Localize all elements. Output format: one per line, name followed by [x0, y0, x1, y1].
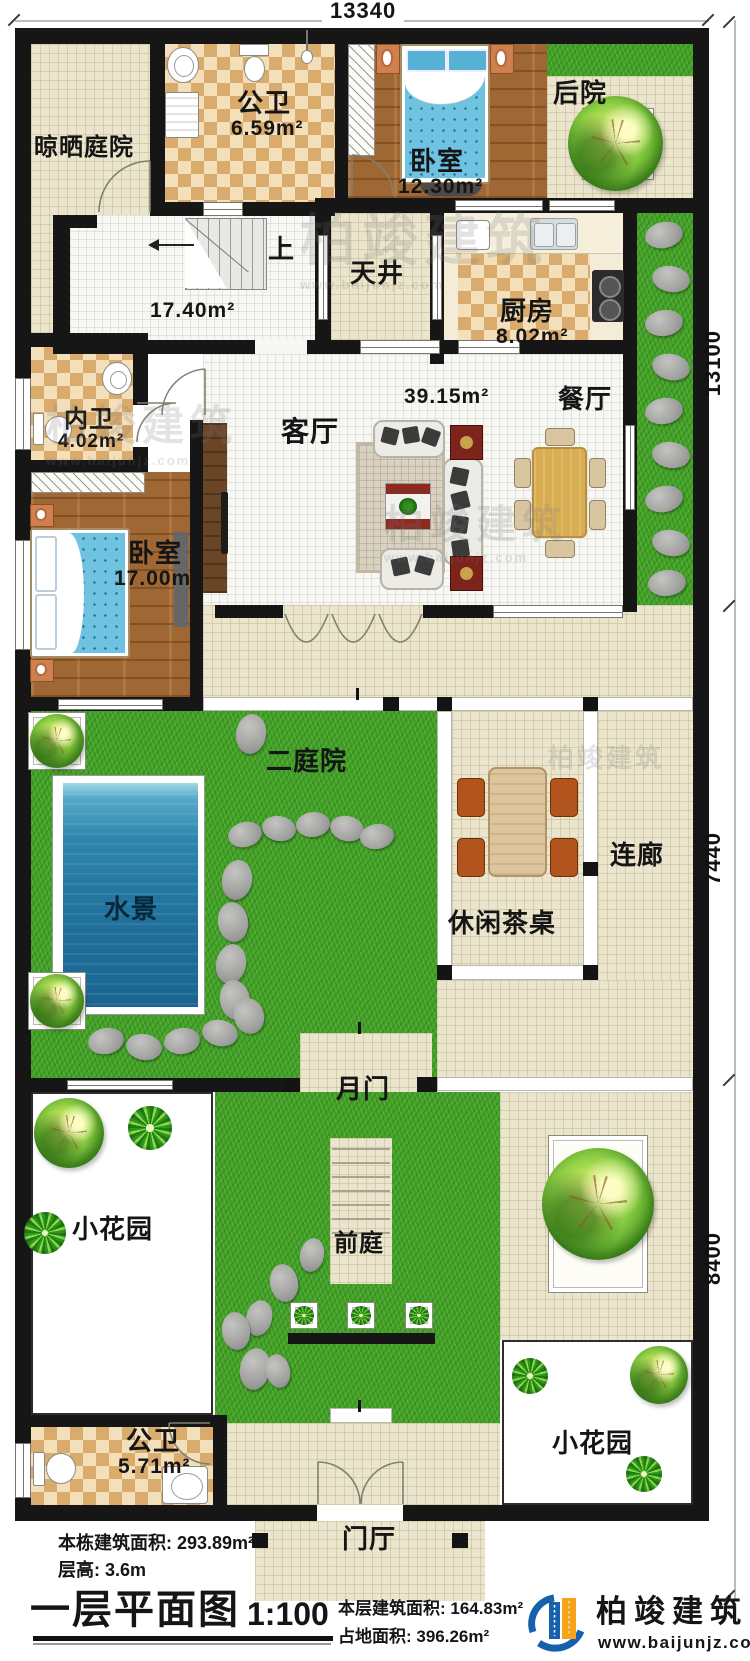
wall: [215, 605, 283, 618]
shower-icon: [165, 92, 199, 138]
pillow: [35, 594, 57, 650]
tea-chair: [457, 838, 485, 877]
label-garden-left: 小花园: [72, 1216, 153, 1242]
wall-bottom-left: [15, 1505, 317, 1521]
window-bedroom-main-west: [15, 540, 31, 650]
bed: [30, 528, 130, 658]
window-living-south: [493, 605, 623, 618]
nightstand: [490, 44, 514, 74]
opening-hall-living: [255, 340, 307, 354]
mini-planter: [290, 1302, 318, 1329]
tree-icon: [630, 1346, 688, 1404]
dim-line-right: [734, 20, 736, 1600]
dining-chair: [589, 500, 606, 530]
label-bedroom-top-area: 12.30m²: [398, 176, 483, 197]
corridor-band-west: [437, 711, 452, 980]
label-moon-gate: 月门: [336, 1076, 390, 1102]
shrub-icon: [128, 1106, 172, 1150]
label-living: 客厅: [281, 418, 339, 446]
dining-chair: [589, 458, 606, 488]
folding-door[interactable]: [330, 612, 377, 660]
gate-courtyard-west[interactable]: [67, 1080, 173, 1090]
tree-icon: [34, 1098, 104, 1168]
toilet-bowl-icon: [46, 1453, 76, 1484]
shrub-icon: [626, 1456, 662, 1492]
wall: [307, 340, 360, 354]
label-bedroom-top: 卧室: [410, 148, 464, 174]
tea-table: [488, 767, 547, 877]
label-bedroom-main: 卧室: [128, 540, 182, 566]
stair-arrow-head: [148, 239, 159, 251]
footer-building-area: 本栋建筑面积: 293.89m²: [58, 1534, 254, 1552]
nightstand: [376, 44, 400, 74]
swing-marker: [358, 1022, 361, 1034]
pillow: [35, 536, 57, 592]
pillar: [383, 697, 399, 711]
floor-plan: 柏竣建筑www.baijunjz.com 柏竣建筑www.baijunjz.co…: [0, 0, 750, 1661]
pendant-lamp-icon: [306, 30, 308, 52]
nightstand: [30, 659, 54, 682]
tree-icon: [542, 1148, 654, 1260]
dim-right-top: 13100: [700, 330, 726, 396]
wall: [53, 215, 97, 228]
label-bath-top: 公卫: [237, 90, 291, 116]
pillar: [583, 697, 598, 711]
label-drying-yard: 晾晒庭院: [34, 136, 134, 160]
wardrobe-top: [348, 44, 375, 156]
label-bath-bottom: 公卫: [126, 1428, 180, 1454]
tea-chair: [550, 838, 578, 877]
tea-area-south: [437, 980, 693, 1077]
dining-chair: [545, 428, 575, 446]
label-kitchen-area: 8.02m²: [496, 326, 569, 347]
mini-planter: [405, 1302, 433, 1329]
nightstand: [30, 504, 54, 527]
bed-sheet: [56, 533, 84, 653]
pendant-lamp-icon: [301, 50, 313, 64]
wall: [53, 340, 255, 354]
toilet-icon: [33, 1452, 45, 1486]
label-kitchen: 厨房: [500, 298, 554, 324]
sofa: [373, 420, 445, 458]
folding-door[interactable]: [377, 612, 424, 660]
label-front-yard: 前庭: [334, 1232, 384, 1256]
watermark: 柏竣建筑www.baijunjz.com: [46, 392, 238, 468]
label-backyard: 后院: [553, 80, 607, 106]
label-foyer: 门厅: [342, 1526, 396, 1552]
pillar: [252, 1533, 268, 1548]
pillar: [583, 862, 598, 876]
entry-door-left[interactable]: [315, 1458, 361, 1507]
window-bath-inner-west: [15, 378, 31, 450]
wardrobe-main: [31, 472, 145, 493]
folding-door[interactable]: [283, 612, 330, 660]
plan-scale: 1:100: [247, 1598, 329, 1630]
mini-planter: [347, 1302, 375, 1329]
brand-website: www.baijunjz.com: [598, 1634, 750, 1651]
pillar: [437, 965, 452, 980]
footer-floor-area: 本层建筑面积: 164.83m²: [338, 1600, 523, 1617]
toilet-icon: [33, 413, 44, 445]
pillar: [452, 1533, 468, 1548]
foyer-step: [330, 1408, 392, 1423]
label-living-area: 39.15m²: [404, 386, 489, 407]
wall: [213, 1415, 227, 1521]
dim-right-bottom: 8400: [700, 1232, 726, 1285]
swing-marker: [356, 688, 359, 700]
sink-icon: [102, 362, 132, 395]
wall: [288, 1333, 435, 1344]
label-dining: 餐厅: [558, 386, 612, 412]
sink-icon: [167, 47, 199, 83]
label-bath-top-area: 6.59m²: [231, 118, 304, 139]
label-bedroom-main-area: 17.00m²: [114, 568, 199, 589]
watermark: 柏竣建筑www.baijunjz.com: [384, 492, 568, 565]
label-stairs-area: 17.40m²: [150, 300, 235, 321]
veranda: [203, 605, 693, 697]
corridor-band-south: [437, 965, 598, 980]
wall-right: [693, 28, 709, 1521]
wall: [335, 44, 348, 202]
label-courtyard2: 二庭院: [266, 748, 347, 774]
wall-left: [15, 28, 31, 1521]
stair-arrow: [158, 244, 194, 246]
label-bath-bottom-area: 5.71m²: [118, 1456, 191, 1477]
wall: [623, 198, 637, 612]
dining-chair: [514, 458, 531, 488]
title-underline-shadow: [33, 1643, 331, 1645]
label-water-feature: 水景: [104, 896, 158, 922]
wall: [423, 605, 493, 618]
tree-icon: [30, 714, 84, 768]
label-tea-table: 休闲茶桌: [448, 910, 556, 936]
door-arc[interactable]: [96, 158, 153, 215]
shrub-icon: [24, 1212, 66, 1254]
footer-floor-height: 层高: 3.6m: [58, 1561, 146, 1579]
label-corridor: 连廊: [610, 842, 664, 868]
brand-name: 柏竣建筑: [596, 1596, 748, 1627]
pillar: [583, 965, 598, 980]
plan-title: 一层平面图: [30, 1590, 240, 1630]
toilet-icon: [239, 44, 269, 56]
pillar: [283, 1078, 300, 1092]
pillow: [406, 49, 447, 72]
walkway-band-south: [437, 1077, 693, 1091]
title-underline: [33, 1636, 333, 1641]
swing-marker: [358, 1400, 361, 1412]
brand-logo-icon: [526, 1590, 590, 1654]
pillow: [447, 49, 488, 72]
window-atrium-south: [360, 340, 440, 354]
stove-icon: [592, 270, 624, 322]
dim-top: 13340: [322, 0, 404, 22]
tree-icon: [568, 96, 663, 191]
pillar: [437, 697, 452, 711]
pillar: [417, 1077, 437, 1092]
backyard-grass: [547, 44, 693, 76]
tv-icon: [221, 492, 228, 554]
entry-door-right[interactable]: [360, 1458, 406, 1507]
window-bath-bottom-west: [15, 1443, 31, 1498]
window-backyard-kitchen: [549, 200, 615, 211]
dim-right-middle: 7440: [700, 832, 726, 885]
watermark: 柏竣建筑www.baijunjz.com: [300, 196, 548, 292]
shrub-icon: [512, 1358, 548, 1394]
window-bedroom-main-south: [58, 699, 163, 710]
tree-icon: [30, 974, 84, 1028]
footer-land-area: 占地面积: 396.26m²: [338, 1628, 489, 1645]
door-slide-bath-top[interactable]: [203, 202, 243, 216]
tea-chair: [550, 778, 578, 817]
tea-chair: [457, 778, 485, 817]
wall-top: [15, 28, 709, 44]
window-dining-east: [625, 425, 635, 510]
label-garden-right: 小花园: [552, 1430, 633, 1456]
toilet-bowl-icon: [244, 56, 265, 82]
wall: [440, 340, 458, 354]
walkway-steps: [332, 1146, 390, 1234]
wall-bottom-right: [403, 1505, 709, 1521]
label-stairs-up: 上: [268, 236, 295, 262]
side-table: [450, 425, 483, 460]
watermark: 柏竣建筑: [548, 738, 664, 775]
door-arc[interactable]: [349, 152, 396, 199]
